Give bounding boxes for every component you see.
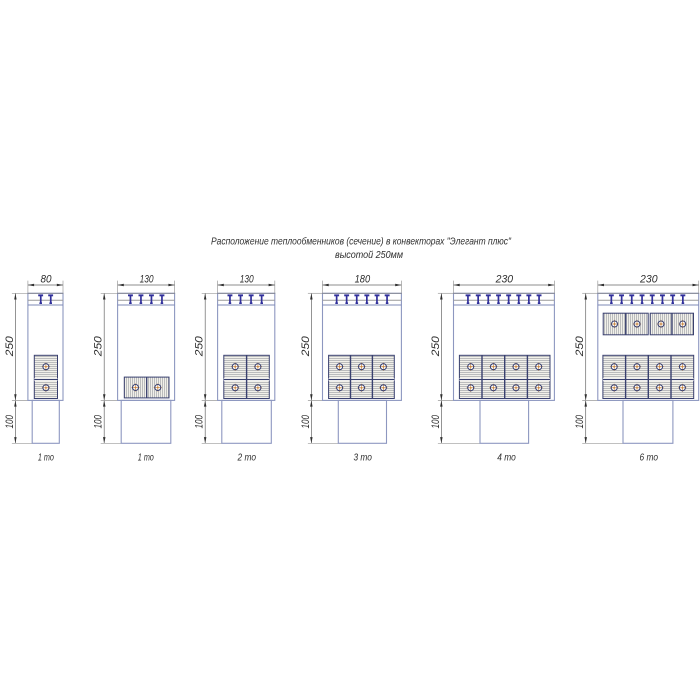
- svg-text:2 то: 2 то: [237, 452, 257, 463]
- svg-text:100: 100: [574, 414, 586, 428]
- svg-text:250: 250: [574, 335, 586, 357]
- svg-text:100: 100: [194, 414, 206, 428]
- svg-text:250: 250: [93, 335, 105, 357]
- svg-text:250: 250: [430, 335, 442, 357]
- svg-text:250: 250: [300, 335, 312, 357]
- svg-text:250: 250: [194, 335, 206, 357]
- svg-text:230: 230: [495, 274, 514, 286]
- svg-text:180: 180: [355, 274, 371, 286]
- svg-text:1 то: 1 то: [38, 452, 54, 463]
- svg-text:100: 100: [300, 414, 312, 428]
- svg-text:100: 100: [4, 414, 16, 428]
- svg-text:230: 230: [639, 274, 658, 286]
- svg-text:4 то: 4 то: [497, 452, 516, 463]
- svg-text:100: 100: [93, 414, 105, 428]
- svg-text:80: 80: [41, 274, 53, 286]
- svg-text:Расположение теплообменников (: Расположение теплообменников (сечение) в…: [211, 236, 511, 248]
- svg-text:3 то: 3 то: [353, 452, 372, 463]
- svg-text:250: 250: [4, 335, 16, 357]
- svg-text:130: 130: [240, 274, 255, 286]
- svg-text:130: 130: [140, 274, 155, 286]
- svg-text:6 то: 6 то: [640, 452, 659, 463]
- svg-text:1 то: 1 то: [138, 452, 154, 463]
- svg-text:высотой 250мм: высотой 250мм: [335, 250, 403, 261]
- svg-text:100: 100: [430, 414, 442, 428]
